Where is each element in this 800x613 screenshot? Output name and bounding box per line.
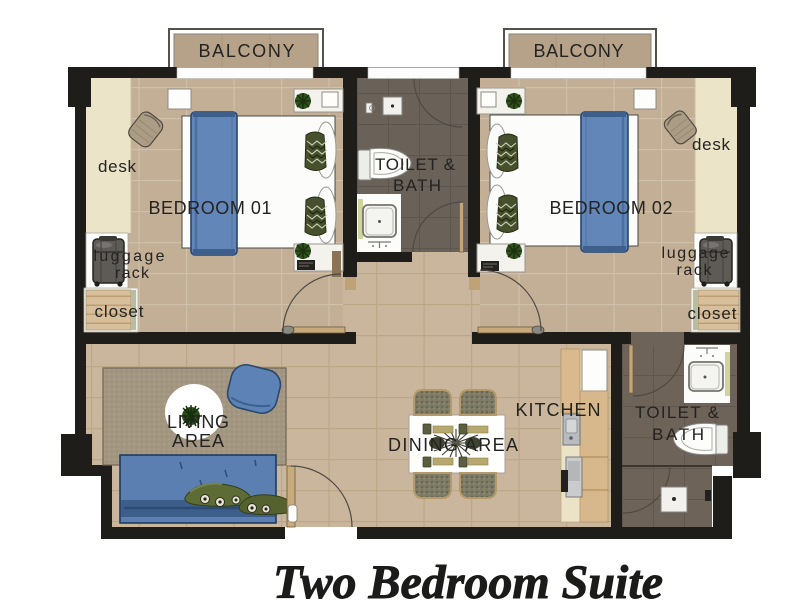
svg-text:BALCONY: BALCONY	[199, 41, 296, 61]
svg-text:desk: desk	[98, 157, 137, 176]
svg-text:Two Bedroom Suite: Two Bedroom Suite	[273, 556, 663, 609]
svg-text:TOILET &: TOILET &	[375, 155, 456, 174]
svg-text:rack: rack	[115, 265, 150, 282]
svg-text:BEDROOM 02: BEDROOM 02	[550, 198, 673, 218]
svg-text:desk: desk	[692, 135, 731, 154]
svg-text:KITCHEN: KITCHEN	[516, 400, 601, 420]
svg-text:closet: closet	[95, 302, 144, 321]
svg-text:BEDROOM 01: BEDROOM 01	[149, 198, 272, 218]
svg-text:closet: closet	[688, 304, 737, 323]
svg-text:TOILET &: TOILET &	[635, 403, 720, 422]
svg-text:LIVING: LIVING	[167, 412, 229, 432]
svg-text:BALCONY: BALCONY	[534, 41, 625, 61]
svg-text:BATH: BATH	[393, 176, 441, 195]
svg-text:BATH: BATH	[652, 425, 704, 444]
svg-text:AREA: AREA	[172, 431, 224, 451]
